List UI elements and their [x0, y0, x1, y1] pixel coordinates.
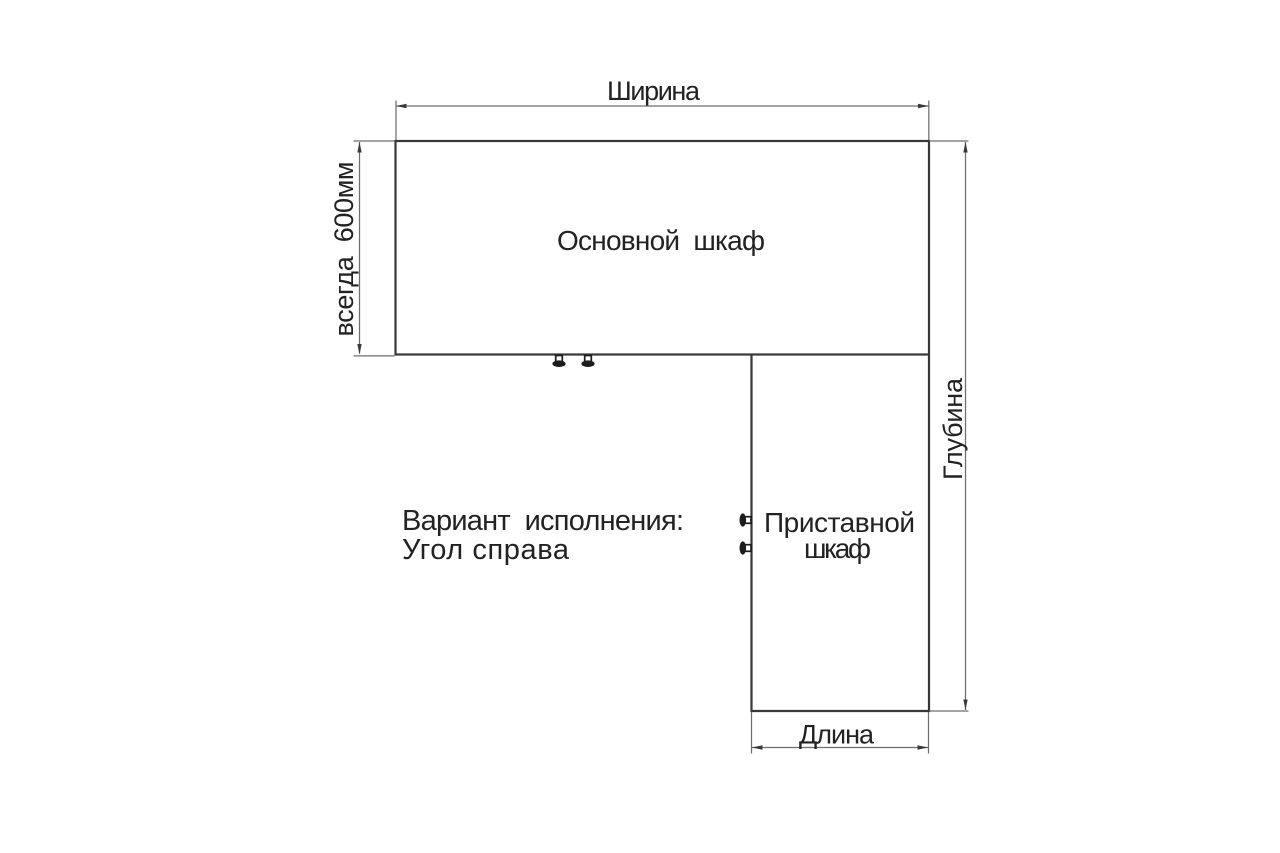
svg-text:Угол справа: Угол справа	[402, 534, 570, 566]
svg-text:Ширина: Ширина	[607, 76, 701, 106]
svg-text:Вариант исполнения:: Вариант исполнения:	[402, 505, 684, 537]
svg-text:шкаф: шкаф	[804, 533, 871, 564]
svg-text:Глубина: Глубина	[938, 377, 968, 480]
svg-text:Основной шкаф: Основной шкаф	[557, 225, 765, 256]
svg-text:Длина: Длина	[799, 720, 875, 750]
svg-text:всегда 600мм: всегда 600мм	[329, 162, 359, 337]
